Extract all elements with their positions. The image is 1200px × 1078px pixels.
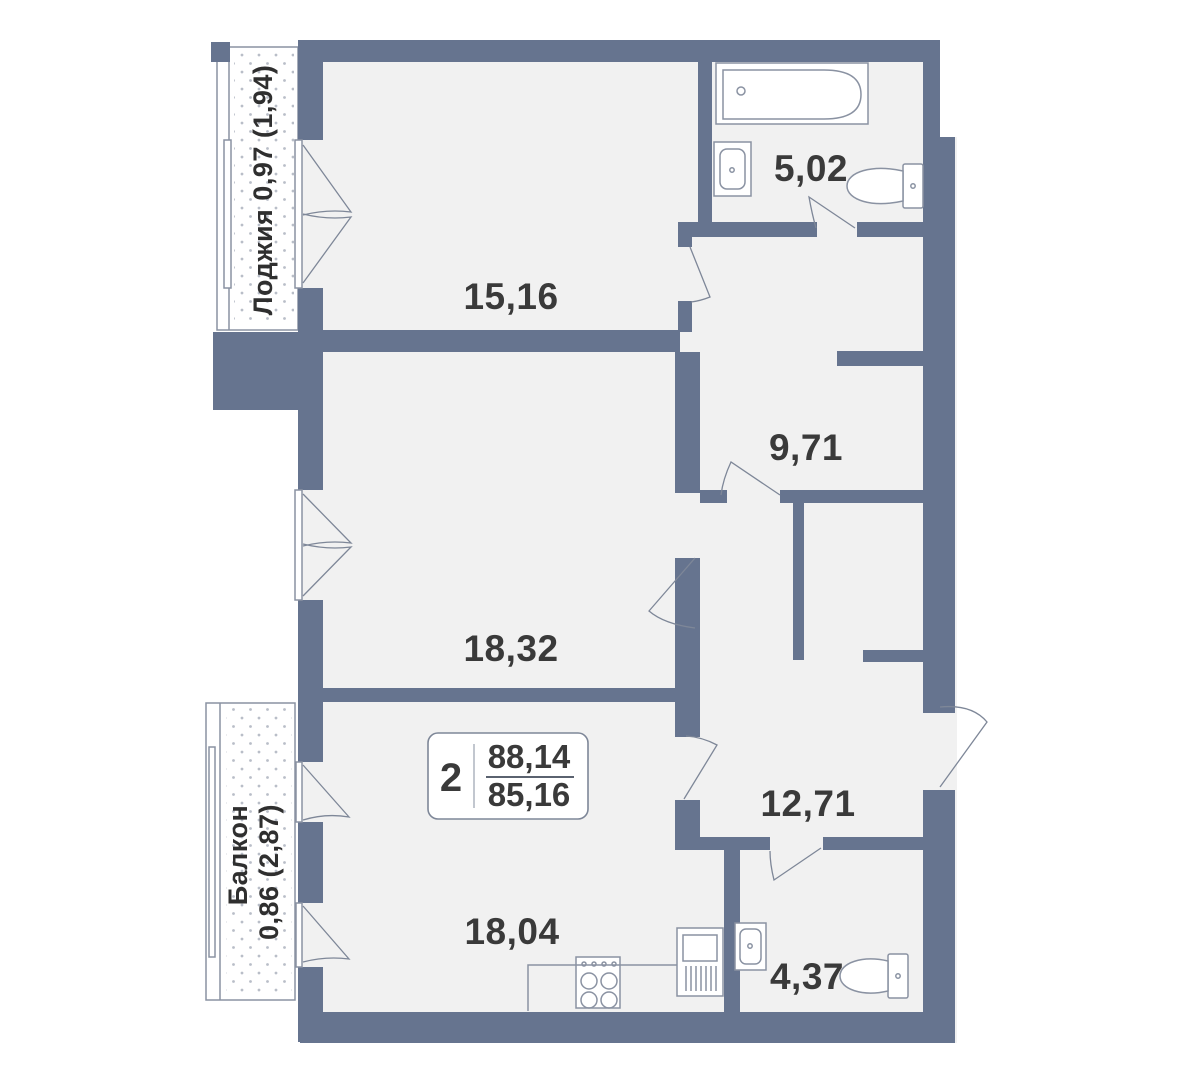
window-icon [296,762,302,822]
balcony-name: Балкон [223,805,253,906]
window-icon [295,490,302,600]
room-label-bathroom: 5,02 [774,148,848,189]
balcony: Балкон 0,86 (2,87) [206,703,295,1000]
bathtub-icon [716,63,868,124]
balcony-value: 0,86 (2,87) [254,804,284,940]
sink-icon [735,923,766,970]
loggia-label: Лоджия 0,97 (1,94) [248,65,278,316]
room-label-kitchen: 18,04 [464,911,559,952]
room-label-wc: 4,37 [770,956,844,997]
room-label-living: 15,16 [463,276,558,317]
living-area: 85,16 [488,776,571,813]
sink-icon [714,142,751,196]
loggia: Лоджия 0,97 (1,94) [217,47,298,330]
room-label-corridor: 12,71 [760,783,855,824]
room-label-hall: 9,71 [769,427,843,468]
summary-box: 2 88,14 85,16 [428,733,588,819]
washing-machine-icon [677,928,723,996]
room-label-bedroom: 18,32 [463,628,558,669]
window-icon [296,903,302,967]
floor-plan: Лоджия 0,97 (1,94) Балкон 0,86 (2,87) [0,0,1200,1078]
rooms-count: 2 [440,756,462,800]
total-area: 88,14 [488,738,571,775]
window-icon [295,140,302,288]
